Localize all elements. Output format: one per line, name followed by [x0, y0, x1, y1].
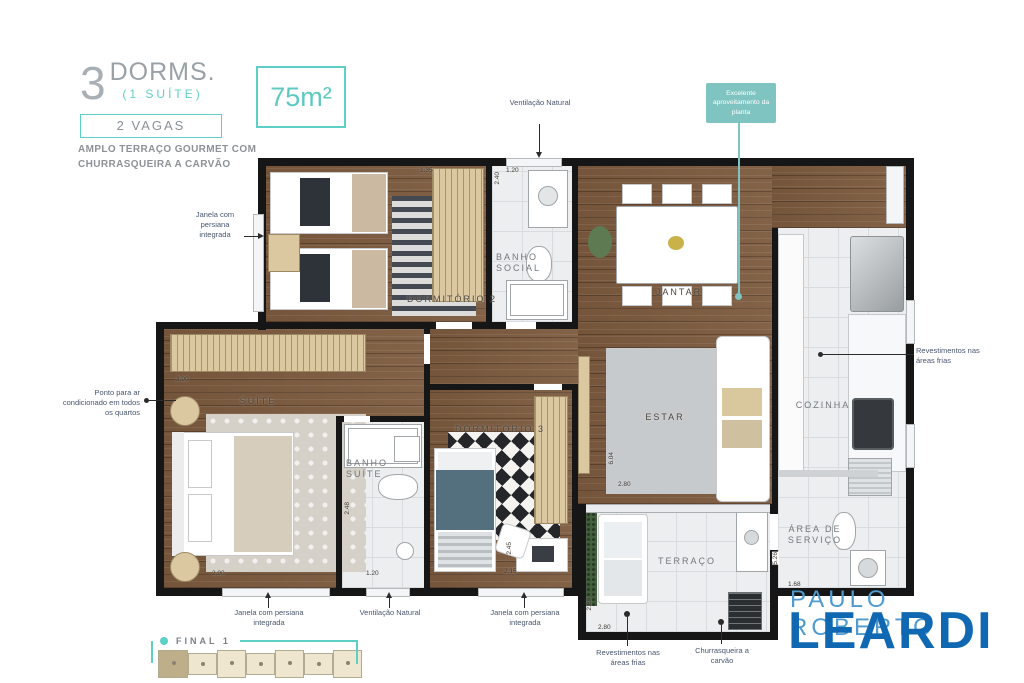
footprint-unit	[217, 650, 246, 678]
pillow-icon	[438, 452, 492, 470]
tv-console-icon	[578, 356, 590, 474]
window-dormitorio2-icon	[253, 214, 264, 312]
blanket-icon	[352, 250, 386, 308]
room-label-dormitorio2: DORMITÓRIO 2	[404, 294, 500, 305]
door-banho-suite	[344, 416, 370, 422]
chair-icon	[622, 184, 652, 204]
unit-final-label: FINAL 1	[176, 636, 231, 646]
wardrobe-icon	[534, 396, 568, 524]
sink-icon	[848, 458, 892, 496]
final-bracket-line	[240, 640, 358, 642]
dimension-label: 2.15	[504, 568, 517, 575]
dimension-label: 2.45	[506, 542, 513, 555]
annotation-ventilacao-banho-suite: Ventilação Natural	[352, 608, 428, 618]
room-label-terraco: TERRAÇO	[642, 556, 732, 567]
arrowhead-icon	[258, 233, 264, 239]
floor-corridor	[430, 329, 578, 390]
final-dot-icon	[160, 637, 168, 645]
annotation-ar-condicionado: Ponto para ar condicionado em todos os q…	[60, 388, 140, 417]
sliding-door-terraco-icon	[586, 504, 770, 513]
wall-terraco-left	[578, 504, 586, 640]
sink-icon	[396, 542, 414, 560]
leader-line	[539, 124, 540, 154]
leader-line	[389, 598, 390, 608]
pillow-icon	[188, 494, 212, 542]
plan-title: 3 DORMS. (1 SUÍTE)	[80, 60, 216, 106]
wall-banho-jantar	[572, 166, 578, 322]
blanket-icon	[234, 436, 292, 552]
fridge-icon	[850, 236, 904, 312]
floorplan-page: 3 DORMS. (1 SUÍTE) 2 VAGAS AMPLO TERRAÇO…	[0, 0, 1024, 683]
footprint-unit	[275, 650, 304, 678]
wardrobe-icon	[170, 334, 366, 372]
annotation-ventilacao-banho-social: Ventilação Natural	[502, 98, 578, 108]
callout-leader-dot	[735, 293, 742, 300]
door-suite	[424, 334, 430, 364]
leader-line	[822, 354, 914, 355]
leader-line	[721, 625, 722, 644]
dimension-label: 1.20	[366, 570, 379, 577]
wall-right	[906, 158, 914, 596]
blanket-icon	[438, 532, 492, 568]
wall-estar-cozinha	[772, 228, 778, 504]
room-label-banho-social: BANHO SOCIAL	[496, 252, 550, 275]
room-label-suite: SUÍTE	[228, 396, 288, 407]
leader-line	[268, 598, 269, 608]
final-bracket-line	[151, 641, 153, 663]
window-cozinha-icon	[906, 300, 915, 344]
window-servico-icon	[906, 424, 915, 468]
sink-icon	[394, 436, 420, 462]
stove-icon	[852, 398, 894, 450]
pillow-icon	[300, 178, 330, 226]
dimension-label: 2.48	[344, 502, 351, 515]
plant-icon	[588, 226, 612, 258]
annotation-janela-suite: Janela com persiana integrada	[226, 608, 312, 628]
counter-icon	[778, 234, 804, 472]
leader-line	[244, 236, 258, 237]
cushion-icon	[722, 388, 762, 416]
blanket-icon	[352, 174, 386, 232]
room-label-area-servico: ÁREA DE SERVIÇO	[786, 524, 844, 547]
cushion-icon	[604, 560, 642, 596]
room-label-estar: ESTAR	[630, 412, 700, 423]
leader-line	[627, 617, 628, 646]
headboard-icon	[172, 432, 184, 556]
building-footprint	[158, 650, 362, 678]
dimension-label: 3.90	[176, 376, 189, 383]
annotation-janela-dorm3: Janela com persiana integrada	[482, 608, 568, 628]
pillow-icon	[300, 254, 330, 302]
annotation-revestimentos-cozinha: Revestimentos nas áreas frias	[916, 346, 1000, 366]
leader-line	[524, 598, 525, 608]
arrowhead-icon	[536, 152, 542, 158]
arrowhead-icon	[386, 592, 392, 598]
tagline-line1: AMPLO TERRAÇO GOURMET COM	[78, 142, 256, 157]
plan-subtitle: (1 SUÍTE)	[110, 88, 216, 100]
annotation-janela-dorm2: Janela com persiana integrada	[184, 210, 246, 239]
wall-estar-dorm3	[572, 384, 578, 596]
wall-suite-corridor	[424, 329, 430, 596]
footprint-unit-highlighted	[158, 650, 188, 678]
bedroom-count: 3	[80, 60, 106, 106]
wall-suite-banho	[336, 416, 342, 596]
plant-icon	[170, 552, 200, 582]
room-label-cozinha: COZINHA	[794, 400, 852, 411]
blanket-icon	[436, 470, 494, 530]
dimension-label: 6.04	[608, 452, 615, 465]
dimension-label: 5.26	[772, 552, 779, 565]
dimension-label: 1.20	[506, 167, 519, 174]
footprint-unit	[304, 653, 333, 675]
footprint-unit	[246, 653, 275, 675]
room-label-banho-suite: BANHO SUÍTE	[346, 458, 394, 481]
counter-divider-servico	[778, 470, 878, 477]
footprint-unit	[188, 653, 217, 675]
callout-note: Excelente aproveitamento da planta	[706, 83, 776, 123]
nightstand-icon	[268, 234, 300, 272]
dimension-label: 2.80	[586, 598, 593, 611]
dimension-label: 2.80	[618, 481, 631, 488]
room-label-jantar: JANTAR	[614, 287, 744, 298]
window-suite-icon	[222, 588, 330, 597]
annotation-churrasqueira: Churrasqueira a carvão	[684, 646, 760, 666]
arrowhead-icon	[265, 592, 271, 598]
sofa-icon	[716, 336, 770, 502]
entry-door-icon	[886, 166, 904, 224]
wall-top	[258, 158, 914, 166]
tagline-line2: CHURRASQUEIRA A CARVÃO	[78, 157, 256, 172]
shower-icon	[506, 280, 568, 320]
charcoal-grill-icon	[728, 592, 762, 630]
room-label-dormitorio3: DORMITÓRIO 3	[430, 424, 570, 435]
leader-line	[148, 400, 176, 401]
dimension-label: 1.35	[420, 167, 433, 174]
tagline: AMPLO TERRAÇO GOURMET COM CHURRASQUEIRA …	[78, 142, 256, 172]
cushion-icon	[722, 420, 762, 448]
planter-icon	[586, 512, 597, 606]
final-bracket-line	[356, 640, 358, 664]
chair-icon	[662, 184, 692, 204]
area-badge: 75m²	[256, 66, 346, 128]
door-terraco-servico	[770, 514, 778, 550]
dimension-label: 2.90	[212, 570, 225, 577]
door-dormitorio3	[534, 384, 562, 390]
pillow-icon	[188, 440, 212, 488]
arrowhead-icon	[521, 592, 527, 598]
wardrobe-icon	[432, 168, 484, 302]
door-dormitorio2	[436, 322, 472, 329]
sink-icon	[744, 530, 759, 545]
wall-left-lower	[156, 322, 164, 596]
dimension-label: 2.40	[494, 172, 501, 185]
washer-door-icon	[858, 558, 878, 578]
door-banho-social	[506, 322, 536, 329]
callout-leader-line	[738, 123, 740, 295]
sink-icon	[538, 186, 558, 206]
parking-badge: 2 VAGAS	[80, 114, 222, 138]
wall-terraco-bottom	[578, 632, 778, 640]
cushion-icon	[604, 522, 642, 558]
laptop-icon	[532, 546, 554, 562]
annotation-revestimentos-terraco: Revestimentos nas áreas frias	[588, 648, 668, 668]
plan-title-text: DORMS.	[110, 60, 216, 85]
dimension-label: 2.80	[598, 624, 611, 631]
brand-logo-name: LEARDI	[788, 608, 994, 655]
window-banho-social-icon	[506, 158, 562, 167]
centerpiece-icon	[668, 236, 684, 250]
chair-icon	[702, 184, 732, 204]
